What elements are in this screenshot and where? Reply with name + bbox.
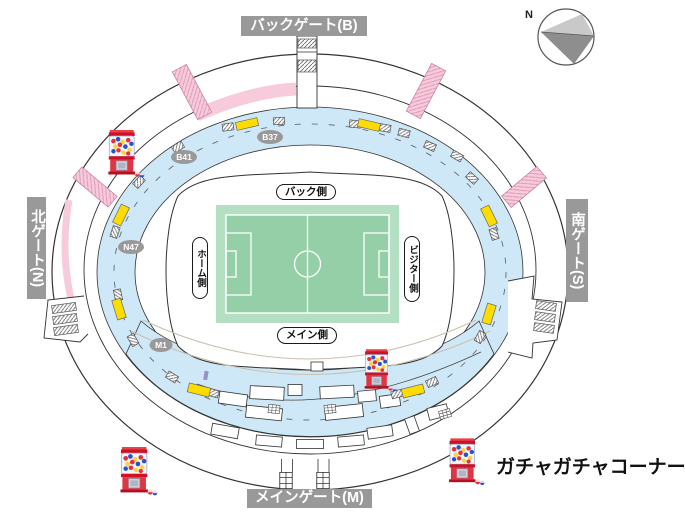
compass-north-label: N [525, 9, 533, 21]
back-gate-label: バックゲート(B) [241, 16, 367, 36]
gacha-machine-icon [449, 438, 484, 485]
main-side-label: メイン側 [277, 327, 337, 344]
gacha-machine-icon [121, 447, 158, 495]
south-gate-label: 南ゲート(S) [566, 199, 588, 302]
back-side-label: バック側 [276, 184, 336, 200]
main-gate-label: メインゲート(M) [247, 489, 372, 508]
badge-b37: B37 [257, 130, 283, 144]
badge-n47: N47 [118, 240, 144, 254]
north-gate-stairs [44, 296, 88, 342]
visitor-side-label: ビジター側 [404, 236, 420, 302]
football-pitch [216, 205, 399, 323]
badge-b41: B41 [171, 150, 197, 164]
gacha-corner-legend-label: ガチャガチャコーナー [496, 452, 685, 479]
compass-icon [538, 9, 594, 65]
home-side-label: ホーム側 [192, 237, 208, 299]
back-gate-corridor [297, 36, 317, 108]
badge-m1: M1 [150, 338, 173, 352]
north-gate-label: 北ゲート(N) [27, 197, 46, 299]
stadium-map: バックゲート(B) 北ゲート(N) 南ゲート(S) メインゲート(M) バック側… [0, 0, 685, 521]
